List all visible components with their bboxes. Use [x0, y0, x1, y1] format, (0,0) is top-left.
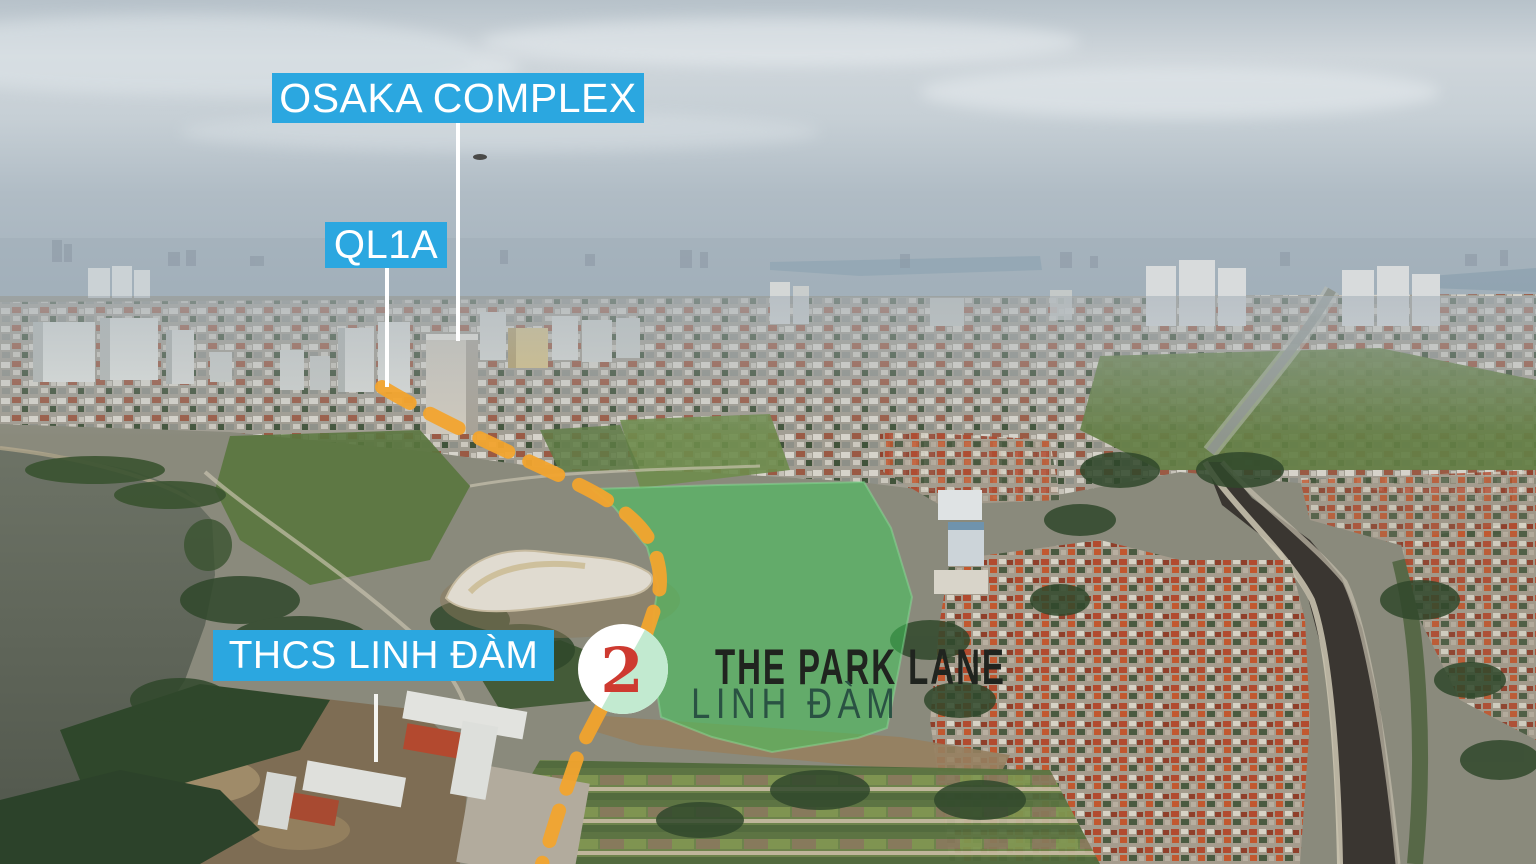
marker-number: 2 — [600, 634, 643, 707]
label-ql1a-road: QL1A — [325, 222, 447, 268]
project-subtitle: LINH ĐÀM — [640, 680, 952, 729]
project-subtitle-text: LINH ĐÀM — [691, 680, 900, 729]
label-thcs-linh-dam-school: THCS LINH ĐÀM — [213, 630, 554, 681]
aerial-location-map: 2 OSAKA COMPLEX QL1A THCS LINH ĐÀM THE P… — [0, 0, 1536, 864]
label-osaka-complex: OSAKA COMPLEX — [272, 73, 644, 123]
annotation-overlay: 2 — [0, 0, 1536, 864]
pointer-line-osaka — [456, 123, 460, 341]
pointer-line-ql1a — [385, 268, 389, 387]
